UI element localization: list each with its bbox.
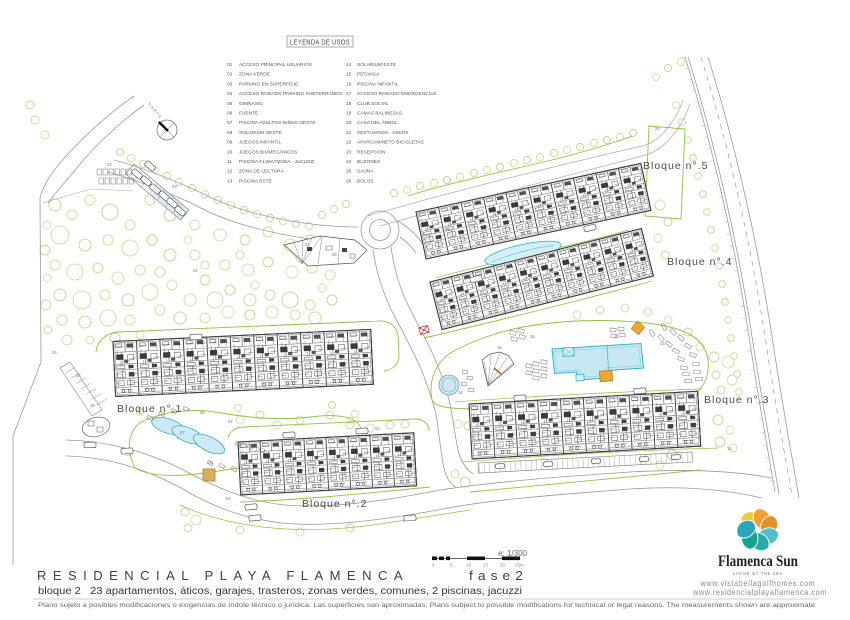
svg-text:24: 24 <box>76 373 81 378</box>
svg-text:ACCESO RODADO EMERGENCIAS: ACCESO RODADO EMERGENCIAS <box>357 91 436 97</box>
svg-text:PISCINA INFANTIL: PISCINA INFANTIL <box>357 81 399 87</box>
svg-text:BOLOS: BOLOS <box>357 178 374 184</box>
svg-text:RESIDENCIAL PLAYA FLAMENCA: RESIDENCIAL PLAYA FLAMENCA <box>37 569 409 583</box>
svg-text:BUZONES: BUZONES <box>357 159 380 165</box>
svg-text:Bloque n°.1: Bloque n°.1 <box>117 403 182 415</box>
svg-text:CASA DEL ÁRBOL: CASA DEL ÁRBOL <box>357 119 398 126</box>
svg-text:08: 08 <box>200 410 205 415</box>
svg-text:04: 04 <box>226 496 231 501</box>
svg-text:PISCINA ADULTOS-NIÑOS OESTE: PISCINA ADULTOS-NIÑOS OESTE <box>239 119 316 126</box>
svg-text:07: 07 <box>227 120 233 126</box>
svg-text:02: 02 <box>375 426 380 431</box>
svg-text:20: 20 <box>500 563 506 568</box>
svg-text:13: 13 <box>227 178 233 184</box>
svg-text:FUENTE: FUENTE <box>239 111 258 117</box>
svg-text:15: 15 <box>346 72 352 78</box>
svg-text:25: 25 <box>346 169 352 175</box>
svg-text:Plano sujeto a posibles modifi: Plano sujeto a posibles modificaciones o… <box>38 603 816 609</box>
svg-text:03: 03 <box>227 81 233 87</box>
svg-text:24: 24 <box>346 159 352 165</box>
svg-text:11: 11 <box>227 159 232 165</box>
svg-text:CLUB SOCIAL: CLUB SOCIAL <box>357 101 389 107</box>
svg-text:Bloque n°.3: Bloque n°.3 <box>704 394 769 406</box>
svg-text:Bloque n°.2: Bloque n°.2 <box>302 498 367 510</box>
svg-text:Flamenca Sun: Flamenca Sun <box>718 553 798 570</box>
svg-text:26: 26 <box>346 178 352 184</box>
svg-text:18: 18 <box>346 101 352 107</box>
svg-text:02: 02 <box>193 268 198 273</box>
svg-text:JUEGOS BIOMECÁNICOS: JUEGOS BIOMECÁNICOS <box>239 148 297 155</box>
svg-text:16: 16 <box>458 390 463 395</box>
svg-text:19: 19 <box>346 111 352 117</box>
svg-text:PISCINA CLIMATIZADA - JACUZZI: PISCINA CLIMATIZADA - JACUZZI <box>239 159 314 165</box>
svg-text:SOLARIUM ESTE: SOLARIUM ESTE <box>357 62 396 68</box>
svg-text:RECEPCION: RECEPCION <box>357 149 386 155</box>
svg-text:10: 10 <box>466 563 472 568</box>
svg-text:23: 23 <box>346 149 352 155</box>
svg-text:ZONA VERDE: ZONA VERDE <box>239 72 270 78</box>
svg-text:Bloque n°.4: Bloque n°.4 <box>667 256 732 268</box>
svg-text:20: 20 <box>208 460 213 465</box>
svg-text:26: 26 <box>655 126 660 131</box>
svg-text:05: 05 <box>332 252 337 257</box>
svg-text:04: 04 <box>52 350 57 355</box>
svg-text:22: 22 <box>346 140 352 146</box>
svg-text:bloque 2 23 apartamentos, át: bloque 2 23 apartamentos, áticos, garaje… <box>38 586 522 597</box>
svg-text:SAUNA: SAUNA <box>357 169 374 175</box>
svg-text:GIMNASIO: GIMNASIO <box>239 101 263 107</box>
svg-text:ACCESO PRINCIPAL USUARIOS: ACCESO PRINCIPAL USUARIOS <box>239 62 312 68</box>
svg-text:www.vistabellagolfhomes.com: www.vistabellagolfhomes.com <box>700 579 816 588</box>
svg-text:04: 04 <box>227 91 233 97</box>
svg-text:JUEGOS INFANTIL: JUEGOS INFANTIL <box>239 140 281 146</box>
svg-text:01: 01 <box>305 242 310 247</box>
svg-text:LIVING BY THE SEA: LIVING BY THE SEA <box>733 571 783 576</box>
svg-text:06: 06 <box>227 111 233 117</box>
svg-text:VESTUARIOS - ASEOS: VESTUARIOS - ASEOS <box>357 130 408 136</box>
svg-text:ACCESO RODADO PARKING SUBTERRA: ACCESO RODADO PARKING SUBTERRANEO <box>239 91 342 97</box>
svg-text:PISCINA ESTE: PISCINA ESTE <box>239 178 272 184</box>
svg-text:17: 17 <box>346 91 352 97</box>
svg-text:15: 15 <box>497 345 502 350</box>
svg-text:01: 01 <box>227 62 233 68</box>
svg-text:10: 10 <box>227 149 233 155</box>
svg-text:CAMAS BALINESAS: CAMAS BALINESAS <box>357 111 402 117</box>
svg-text:08: 08 <box>227 130 233 136</box>
svg-text:11: 11 <box>614 334 619 339</box>
svg-text:14: 14 <box>346 62 352 68</box>
svg-text:SOLARIUM OESTE: SOLARIUM OESTE <box>239 130 282 136</box>
svg-text:www.residencialplayaflamenca.c: www.residencialplayaflamenca.com <box>692 588 827 597</box>
svg-text:09: 09 <box>227 140 233 146</box>
svg-text:APARCAMINETO BICICLETAS: APARCAMINETO BICICLETAS <box>357 140 424 146</box>
svg-text:12: 12 <box>445 227 450 232</box>
svg-text:20: 20 <box>346 120 352 126</box>
svg-text:16: 16 <box>346 81 352 87</box>
svg-text:12: 12 <box>227 169 233 175</box>
svg-text:19: 19 <box>530 334 535 339</box>
svg-text:02: 02 <box>227 72 233 78</box>
svg-text:PARKING EN SUPERFICIE: PARKING EN SUPERFICIE <box>239 81 298 87</box>
svg-text:22: 22 <box>107 162 112 167</box>
svg-text:03: 03 <box>172 184 177 189</box>
svg-text:21: 21 <box>346 130 352 136</box>
svg-text:14: 14 <box>660 341 665 346</box>
svg-text:Bloque n°.5: Bloque n°.5 <box>643 160 708 172</box>
svg-text:15: 15 <box>483 563 489 568</box>
svg-text:18: 18 <box>90 403 95 408</box>
svg-text:05: 05 <box>227 101 233 107</box>
svg-text:ZONA DE LECTURA: ZONA DE LECTURA <box>239 169 285 175</box>
svg-text:25m: 25m <box>515 563 524 568</box>
svg-text:02: 02 <box>228 419 233 424</box>
svg-text:fase2: fase2 <box>469 569 528 583</box>
svg-text:07: 07 <box>180 430 185 435</box>
svg-text:13: 13 <box>727 446 732 451</box>
svg-text:PETANCA: PETANCA <box>357 72 380 78</box>
svg-text:LEYENDA DE USOS: LEYENDA DE USOS <box>290 38 350 47</box>
